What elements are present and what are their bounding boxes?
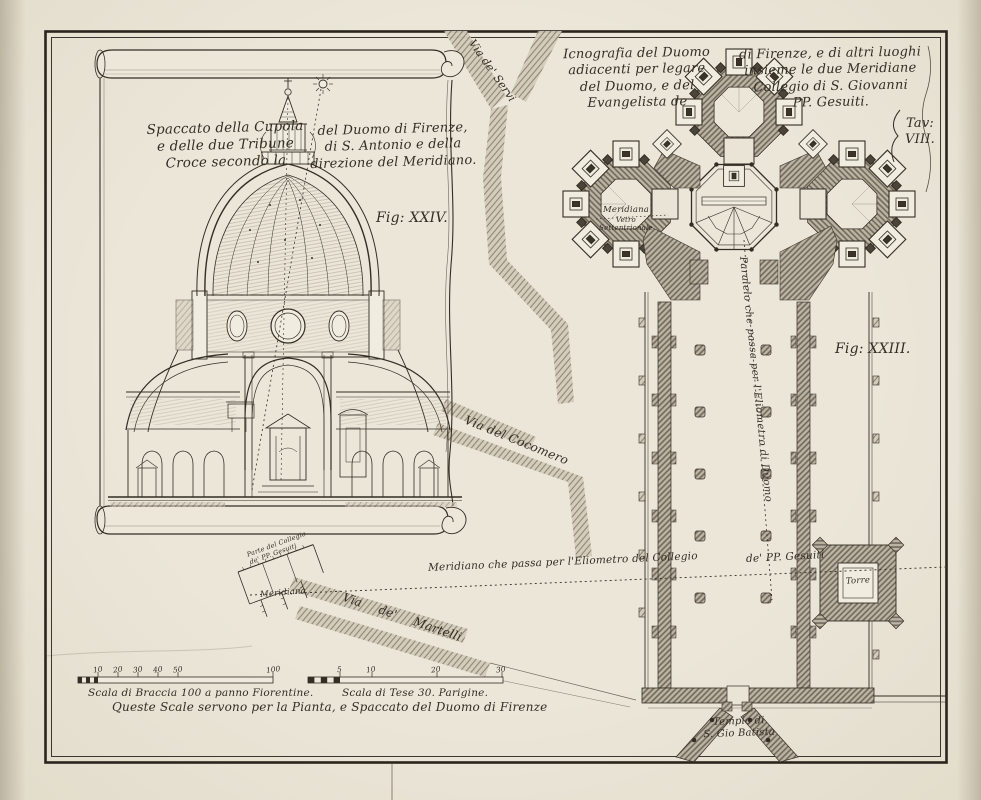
plan-title-left: Icnografia del Duomo adiacenti per legar… (551, 45, 722, 113)
section-title-right: del Duomo di Firenze, di S. Antonio e de… (307, 120, 478, 173)
braccia-tick-label: 50 (172, 664, 183, 674)
engraved-plate-sheet: Spaccato della Cupola e delle due Tribun… (0, 0, 981, 800)
tese-tick-label: 30 (495, 664, 506, 674)
tese-tick-label: 10 (365, 664, 376, 674)
tese-tick-label: 20 (430, 664, 441, 674)
scale-bars (78, 672, 503, 683)
braccia-scale-label: Scala di Braccia 100 a panno Fiorentine. (88, 687, 313, 700)
lower-church (126, 352, 450, 497)
tempio-label: Tempio di S. Gio Batista (695, 714, 784, 741)
facade (642, 688, 874, 703)
fig-24-label: Fig: XXIV. (376, 210, 448, 228)
spire-orb (285, 89, 291, 95)
braccia-tick-label: 40 (152, 664, 163, 674)
braccia-tick-label: 20 (112, 664, 123, 674)
torre-label: Torre (840, 575, 877, 587)
tav-label: Tav: VIII. (896, 116, 944, 149)
side-portal-left (136, 460, 158, 497)
plate-crease (46, 646, 252, 656)
high-altar (258, 414, 318, 492)
tese-tick-label: 5 (336, 665, 342, 675)
dome-shell (197, 157, 379, 296)
crossing-octagon (689, 162, 778, 251)
scales-note: Queste Scale servono per la Pianta, e Sp… (112, 700, 547, 715)
meridiana-note: Meridiana Vetro Settentrionale (588, 206, 664, 233)
side-portal-right (418, 460, 440, 497)
sun-symbol (313, 74, 333, 94)
scroll-top-curl (441, 51, 464, 77)
braccia-tick-label: 30 (132, 664, 143, 674)
plan-title-right: di Firenze, e di altri luoghi insieme le… (727, 44, 933, 113)
braccia-tick-label: 10 (92, 664, 103, 674)
tese-scale-label: Scala di Tese 30. Parigine. (342, 687, 488, 700)
oculus-center (271, 309, 305, 343)
section-title-left: Spaccato della Cupola e delle due Tribun… (137, 118, 313, 173)
engraving-artwork (0, 0, 981, 800)
fig-23-label: Fig: XXIII. (835, 341, 911, 359)
